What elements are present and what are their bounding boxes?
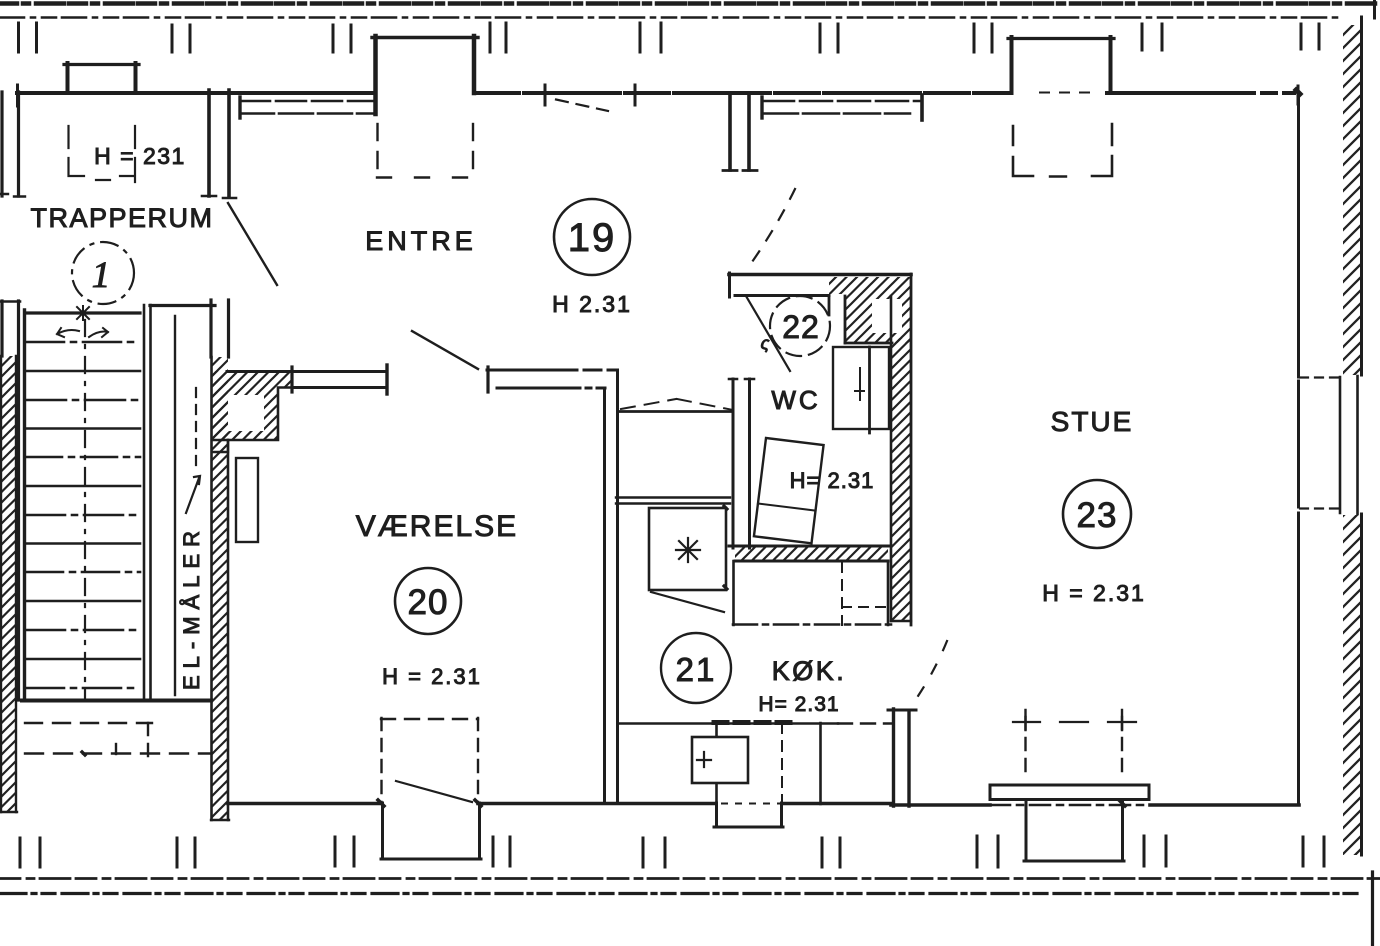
svg-text:21: 21 (676, 651, 717, 688)
svg-text:EL-MÅLER: EL-MÅLER (179, 524, 204, 690)
svg-text:23: 23 (1077, 496, 1118, 535)
svg-text:22: 22 (782, 309, 820, 345)
svg-text:19: 19 (568, 216, 617, 260)
svg-text:H = 231: H = 231 (94, 143, 186, 169)
svg-text:TRAPPERUM: TRAPPERUM (30, 203, 213, 233)
svg-text:H = 2.31: H = 2.31 (1042, 580, 1146, 606)
svg-text:H 2.31: H 2.31 (552, 291, 632, 317)
svg-text:ENTRE: ENTRE (365, 226, 477, 256)
svg-text:STUE: STUE (1051, 406, 1134, 437)
svg-text:H= 2.31: H= 2.31 (758, 693, 839, 716)
svg-text:H = 2.31: H = 2.31 (382, 664, 482, 689)
svg-text:20: 20 (408, 583, 449, 622)
svg-text:VÆRELSE: VÆRELSE (356, 510, 518, 543)
svg-text:KØK.: KØK. (772, 656, 847, 686)
svg-text:1: 1 (92, 255, 111, 296)
svg-text:WC: WC (771, 385, 820, 415)
svg-text:ς: ς (761, 333, 770, 353)
svg-text:H= 2.31: H= 2.31 (790, 468, 875, 493)
